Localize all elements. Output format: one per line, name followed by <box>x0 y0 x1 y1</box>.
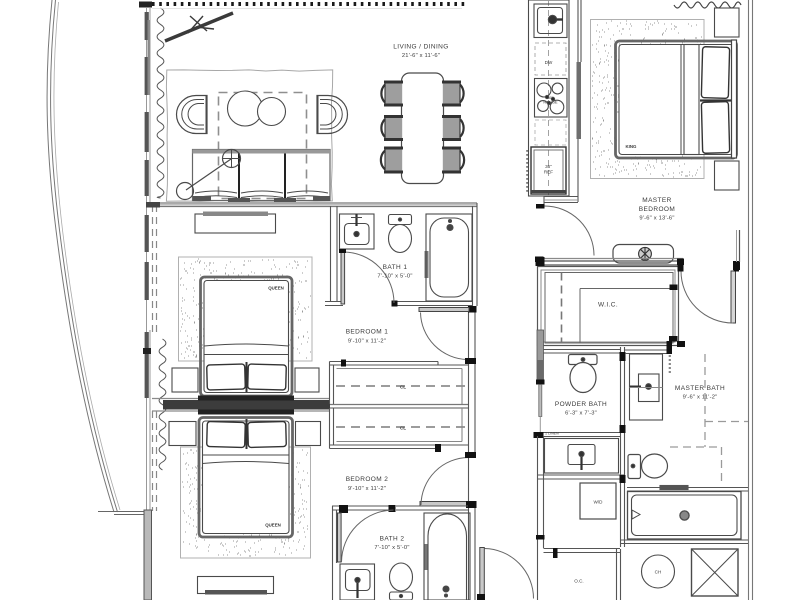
svg-text:BEDROOM: BEDROOM <box>639 206 675 213</box>
svg-text:9'-6" x 11'-2": 9'-6" x 11'-2" <box>683 395 718 401</box>
svg-text:9'-10" x 11'-2": 9'-10" x 11'-2" <box>348 486 386 492</box>
svg-text:CL: CL <box>400 426 406 431</box>
svg-text:LIVING / DINING: LIVING / DINING <box>393 44 448 51</box>
svg-text:9'-10" x 11'-2": 9'-10" x 11'-2" <box>348 339 386 345</box>
svg-text:1 LINEN: 1 LINEN <box>545 432 559 436</box>
svg-text:O.C.: O.C. <box>574 579 583 584</box>
svg-text:QUEEN: QUEEN <box>265 523 281 528</box>
svg-text:7'-10" x 5'-0": 7'-10" x 5'-0" <box>374 545 409 551</box>
svg-text:9'-6" x 13'-6": 9'-6" x 13'-6" <box>639 216 674 222</box>
svg-text:W.I.C.: W.I.C. <box>598 302 618 309</box>
svg-text:CL: CL <box>400 385 406 390</box>
svg-text:KING: KING <box>626 144 638 149</box>
svg-text:BATH 2: BATH 2 <box>380 536 405 543</box>
svg-text:REF: REF <box>544 170 553 175</box>
svg-text:W/D: W/D <box>594 500 604 505</box>
svg-text:36": 36" <box>545 164 552 169</box>
svg-text:CH: CH <box>655 570 662 575</box>
svg-text:DW: DW <box>545 60 553 65</box>
svg-text:21'-6" x 11'-6": 21'-6" x 11'-6" <box>402 53 440 59</box>
svg-text:RANGE: RANGE <box>543 100 558 105</box>
svg-text:7'-10" x 5'-0": 7'-10" x 5'-0" <box>377 274 412 280</box>
svg-text:BATH 1: BATH 1 <box>383 264 408 271</box>
svg-text:POWDER BATH: POWDER BATH <box>555 401 607 408</box>
svg-text:MASTER BATH: MASTER BATH <box>675 385 725 392</box>
svg-text:MASTER: MASTER <box>642 197 672 204</box>
svg-text:BEDROOM 2: BEDROOM 2 <box>346 476 389 483</box>
svg-text:BEDROOM 1: BEDROOM 1 <box>346 329 389 336</box>
svg-text:6'-3" x 7'-3": 6'-3" x 7'-3" <box>565 411 597 417</box>
svg-text:QUEEN: QUEEN <box>268 286 284 291</box>
